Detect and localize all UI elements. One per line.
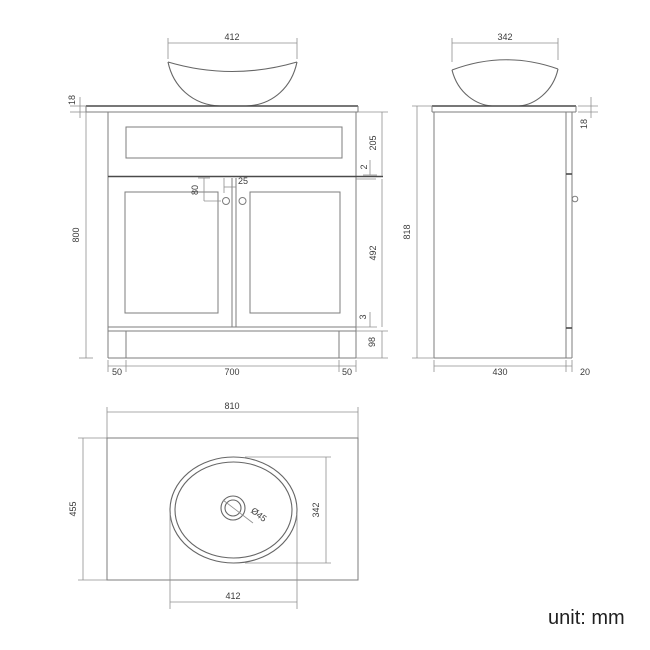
top-basin-depth-label: 342	[311, 502, 321, 517]
side-countertop	[432, 106, 576, 112]
dim-front-bowl-width: 412	[168, 32, 297, 59]
top-countertop-depth-label: 455	[68, 501, 78, 516]
dim-front-door-plinth-gap: 3	[356, 312, 388, 331]
top-basin-width-label: 412	[225, 591, 240, 601]
top-drain-leader-line	[223, 500, 253, 523]
technical-drawing-page: 412 18	[0, 0, 650, 650]
dim-side-countertop-thickness: 18	[578, 97, 598, 129]
dim-front-door-height: 492	[368, 179, 382, 327]
dim-top-basin-width: 412	[170, 514, 297, 609]
side-bowl-depth-label: 342	[497, 32, 512, 42]
front-left-leg-width-label: 50	[112, 367, 122, 377]
dim-front-plinth-height: 98	[356, 331, 388, 358]
top-basin-outline	[170, 457, 297, 563]
dim-front-knob-vertical-offset: 80	[190, 178, 221, 201]
front-basin-rim	[168, 62, 297, 72]
dim-top-countertop-depth: 455	[68, 438, 107, 580]
dim-front-bottom-widths: 50 700 50	[108, 360, 356, 377]
dim-side-bowl-depth: 342	[452, 32, 558, 62]
front-basin-body	[168, 62, 297, 106]
top-view: 810 455 Ø45 342	[68, 401, 358, 609]
side-basin-body	[452, 69, 558, 106]
front-door-plinth-gap-label: 3	[358, 314, 368, 319]
front-center-width-label: 700	[224, 367, 239, 377]
top-countertop-width-label: 810	[224, 401, 239, 411]
front-left-knob	[223, 198, 230, 205]
front-left-door-panel	[125, 192, 218, 313]
front-countertop	[86, 106, 358, 112]
front-cabinet-body	[108, 112, 383, 358]
front-drawer-panel-height-label: 205	[368, 135, 378, 150]
front-plinth-height-label: 98	[367, 337, 377, 347]
front-countertop-thickness-label: 18	[67, 95, 77, 105]
front-right-door-panel	[250, 192, 340, 313]
front-right-knob	[239, 198, 246, 205]
side-countertop-thickness-label: 18	[579, 119, 589, 129]
side-overall-height-label: 818	[402, 224, 412, 239]
front-door-height-label: 492	[368, 245, 378, 260]
top-drain: Ø45	[221, 496, 269, 524]
side-door-thickness-label: 20	[580, 367, 590, 377]
top-drain-diameter-label: Ø45	[249, 505, 269, 523]
front-bowl-width-label: 412	[224, 32, 239, 42]
dim-side-overall-height: 818	[402, 106, 434, 358]
front-right-leg-width-label: 50	[342, 367, 352, 377]
unit-label: unit: mm	[548, 607, 625, 629]
side-knob	[572, 196, 578, 202]
front-knob-vertical-offset-label: 80	[190, 185, 200, 195]
side-basin-top	[452, 60, 558, 70]
side-basin-outline	[452, 60, 558, 106]
front-knob-horizontal-offset-label: 25	[238, 176, 248, 186]
dim-top-countertop-width: 810	[107, 401, 358, 438]
side-cabinet-body	[434, 112, 578, 358]
dim-side-bottom-depths: 430 20	[434, 360, 590, 377]
front-view: 412 18	[67, 32, 388, 377]
drawing-canvas: 412 18	[0, 0, 650, 650]
front-drawer-panel	[126, 127, 342, 158]
front-drawer-door-gap-label: 2	[359, 164, 369, 169]
side-cabinet-depth-label: 430	[492, 367, 507, 377]
front-basin-outline	[168, 62, 297, 106]
dim-front-countertop-thickness: 18	[67, 95, 86, 118]
front-cabinet-height-label: 800	[71, 227, 81, 242]
side-view: 342 18	[402, 32, 598, 377]
dim-front-cabinet-height: 800	[71, 112, 93, 358]
